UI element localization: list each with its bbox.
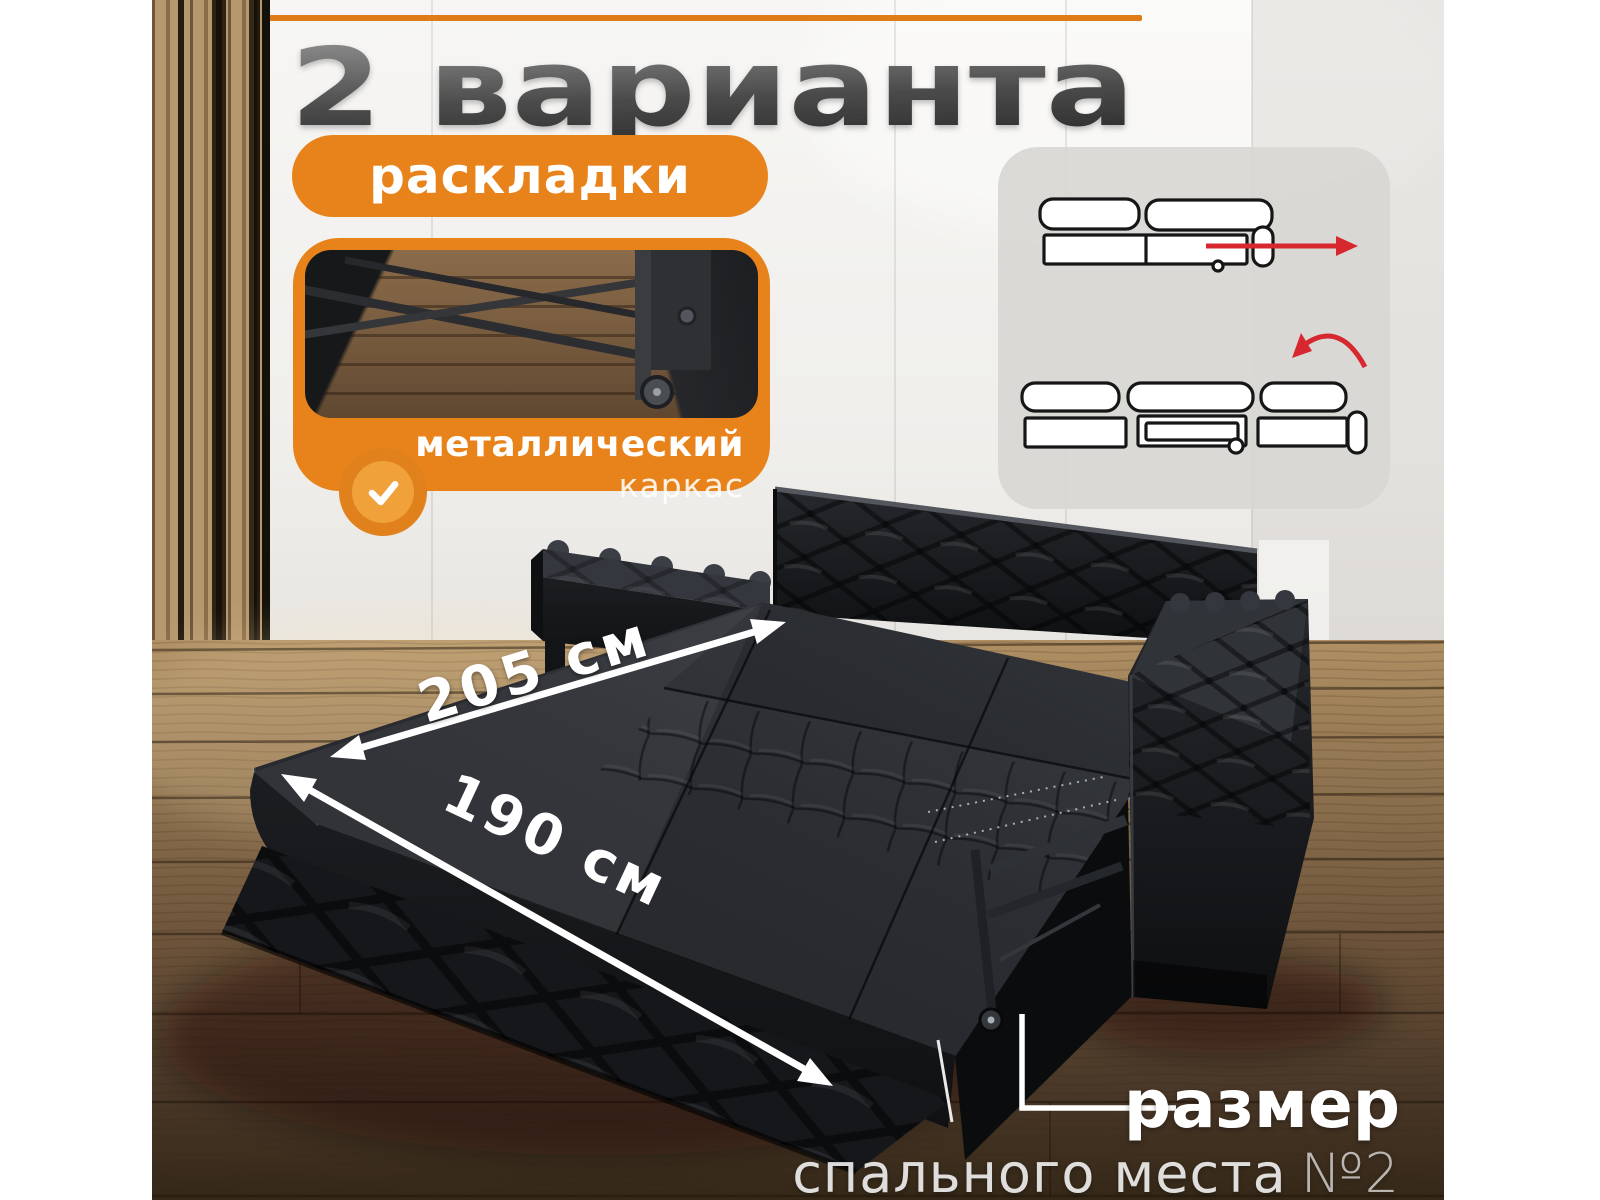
sleeping-size-caption: размер спального места№2 bbox=[792, 1072, 1400, 1200]
schematic-fold-over bbox=[1022, 383, 1366, 453]
page-title: 2 варианта bbox=[290, 26, 1135, 151]
unfold-badge-label: раскладки bbox=[369, 147, 691, 205]
wood-slat-panel bbox=[152, 0, 270, 650]
caption-title: размер bbox=[792, 1072, 1400, 1138]
metal-frame-photo bbox=[305, 250, 758, 418]
metal-frame-title: металлический bbox=[415, 424, 744, 465]
caption-subtitle: спального места№2 bbox=[792, 1146, 1400, 1200]
caption-number: №2 bbox=[1301, 1142, 1400, 1200]
unfold-badge: раскладки bbox=[292, 135, 768, 217]
caption-subtitle-text: спального места bbox=[792, 1142, 1287, 1200]
accent-top-line bbox=[265, 15, 1142, 21]
schematic-pull-out bbox=[1040, 199, 1273, 271]
room-photo-scene: 205 см 190 см 2 варианта bbox=[0, 0, 1600, 1200]
check-icon bbox=[352, 461, 414, 523]
metal-frame-subtitle: каркас bbox=[619, 466, 744, 505]
metal-frame-bars bbox=[305, 250, 758, 418]
product-infographic: 205 см 190 см 2 варианта bbox=[0, 0, 1600, 1200]
fold-variants-panel bbox=[998, 147, 1390, 509]
